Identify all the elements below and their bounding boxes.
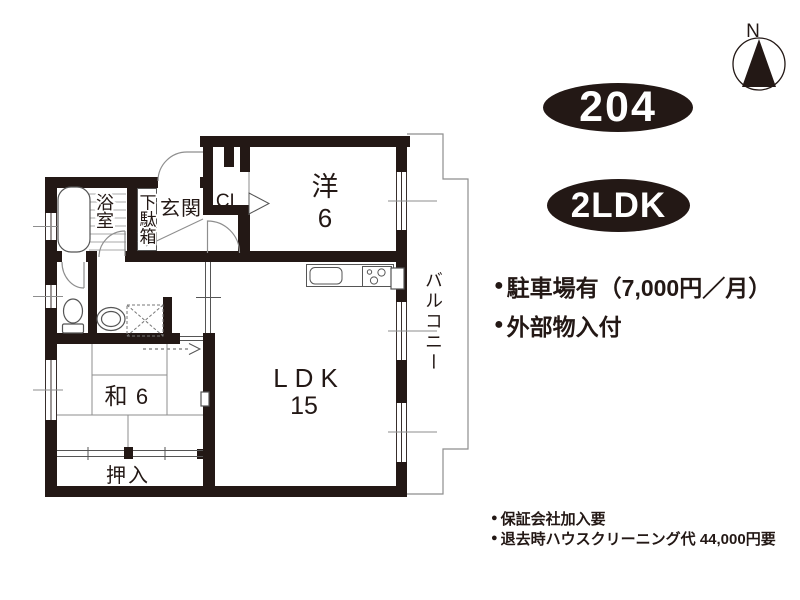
washroom-sliding-door — [196, 262, 221, 333]
japanese-room-sliding-door — [180, 337, 203, 341]
highlight-text: 駐車場有（7,000円／月） — [507, 269, 772, 303]
note-text: 保証会社加入要 — [501, 508, 606, 529]
kitchen-sink-icon — [310, 268, 342, 285]
wall-niche — [201, 392, 209, 406]
wall — [238, 215, 250, 262]
toilet-icon — [63, 299, 84, 333]
bullet-icon: ● — [491, 532, 498, 544]
wall — [45, 333, 180, 344]
wall — [88, 262, 97, 335]
wall — [203, 333, 215, 486]
tatami-lines — [57, 344, 203, 450]
wall — [45, 308, 57, 360]
label-ldk: LDK — [273, 363, 345, 393]
window — [33, 360, 63, 420]
wall — [240, 147, 250, 172]
label-ldk-size: 15 — [290, 392, 318, 420]
highlight-text: 外部物入付 — [507, 308, 622, 342]
wall — [45, 486, 407, 497]
label-japanese-room-size: 6 — [136, 384, 148, 409]
washbasin-icon — [97, 308, 125, 331]
kitchen-counter — [307, 265, 394, 287]
washing-machine-icon — [127, 305, 163, 336]
wall — [45, 177, 158, 188]
bullet-icon: ● — [491, 512, 498, 524]
bullet-icon: ● — [494, 277, 504, 295]
note-item: ● 保証会社加入要 — [491, 509, 776, 527]
label-oshiire: 押入 — [106, 464, 150, 487]
wall — [86, 251, 97, 262]
bullet-icon: ● — [494, 316, 504, 334]
toilet-door-arc — [62, 262, 84, 288]
label-getabako: 下駄箱 — [137, 194, 157, 245]
label-bathroom: 浴室 — [94, 193, 114, 229]
window — [33, 285, 63, 308]
closet-door-marker — [249, 193, 269, 214]
highlight-item: ● 外部物入付 — [494, 310, 771, 340]
label-balcony: バルコニー — [423, 271, 443, 374]
property-notes: ● 保証会社加入要 ● 退去時ハウスクリーニング代 44,000円要 — [491, 509, 776, 549]
label-western-room: 洋 — [312, 172, 339, 202]
note-text: 退去時ハウスクリーニング代 44,000円要 — [501, 528, 776, 549]
wall — [45, 420, 57, 497]
unit-number-badge: 204 — [543, 83, 693, 132]
wall — [224, 147, 234, 167]
wall — [396, 230, 407, 302]
label-japanese-room: 和 — [105, 383, 128, 409]
label-western-room-size: 6 — [318, 203, 332, 233]
label-genkan: 玄関 — [160, 197, 202, 220]
wall — [200, 136, 410, 147]
wall — [45, 240, 57, 285]
stove-icon — [363, 267, 392, 287]
floorplan-page: 洋 6 LDK 15 和 6 押入 CL 玄関 浴室 下駄箱 バルコニー N 2… — [0, 0, 800, 600]
pipe-space-box — [391, 268, 404, 289]
wall — [396, 462, 407, 497]
wall — [163, 297, 172, 335]
bathtub-icon — [58, 187, 90, 252]
note-item: ● 退去時ハウスクリーニング代 44,000円要 — [491, 529, 776, 547]
compass: N — [733, 21, 785, 90]
wall — [127, 188, 137, 251]
property-highlights: ● 駐車場有（7,000円／月） ● 外部物入付 — [494, 271, 771, 349]
bathroom-door-arc — [99, 231, 125, 257]
entry-door-arc — [158, 152, 203, 181]
label-closet: CL — [216, 191, 240, 212]
wall — [396, 136, 407, 172]
hall-door-arc — [208, 221, 240, 253]
room-labels: 洋 6 LDK 15 和 6 押入 CL 玄関 浴室 下駄箱 バルコニー — [94, 172, 443, 487]
compass-north-label: N — [746, 21, 760, 42]
layout-type-badge: 2LDK — [547, 179, 690, 232]
wall — [125, 251, 407, 262]
wall — [203, 136, 213, 215]
unit-number: 204 — [579, 83, 657, 132]
wall — [45, 177, 57, 213]
window — [388, 403, 437, 462]
highlight-item: ● 駐車場有（7,000円／月） — [494, 271, 771, 301]
sliding-arrow — [143, 344, 200, 355]
wall — [396, 360, 407, 403]
oshiire-fusuma — [57, 447, 203, 460]
window — [388, 172, 437, 230]
layout-type: 2LDK — [571, 186, 666, 226]
